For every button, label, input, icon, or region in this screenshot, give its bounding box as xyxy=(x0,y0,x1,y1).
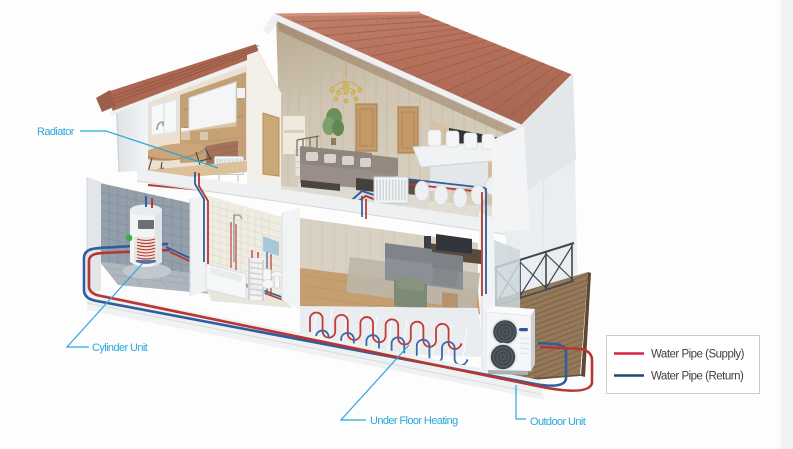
svg-text:Cylinder Unit: Cylinder Unit xyxy=(92,342,148,354)
svg-text:Outdoor Unit: Outdoor Unit xyxy=(530,416,586,428)
svg-text:Under Floor Heating: Under Floor Heating xyxy=(370,415,458,427)
svg-text:Water Pipe (Supply): Water Pipe (Supply) xyxy=(651,349,745,361)
svg-text:Radiator: Radiator xyxy=(37,126,75,138)
svg-text:Water Pipe (Return): Water Pipe (Return) xyxy=(651,371,744,383)
